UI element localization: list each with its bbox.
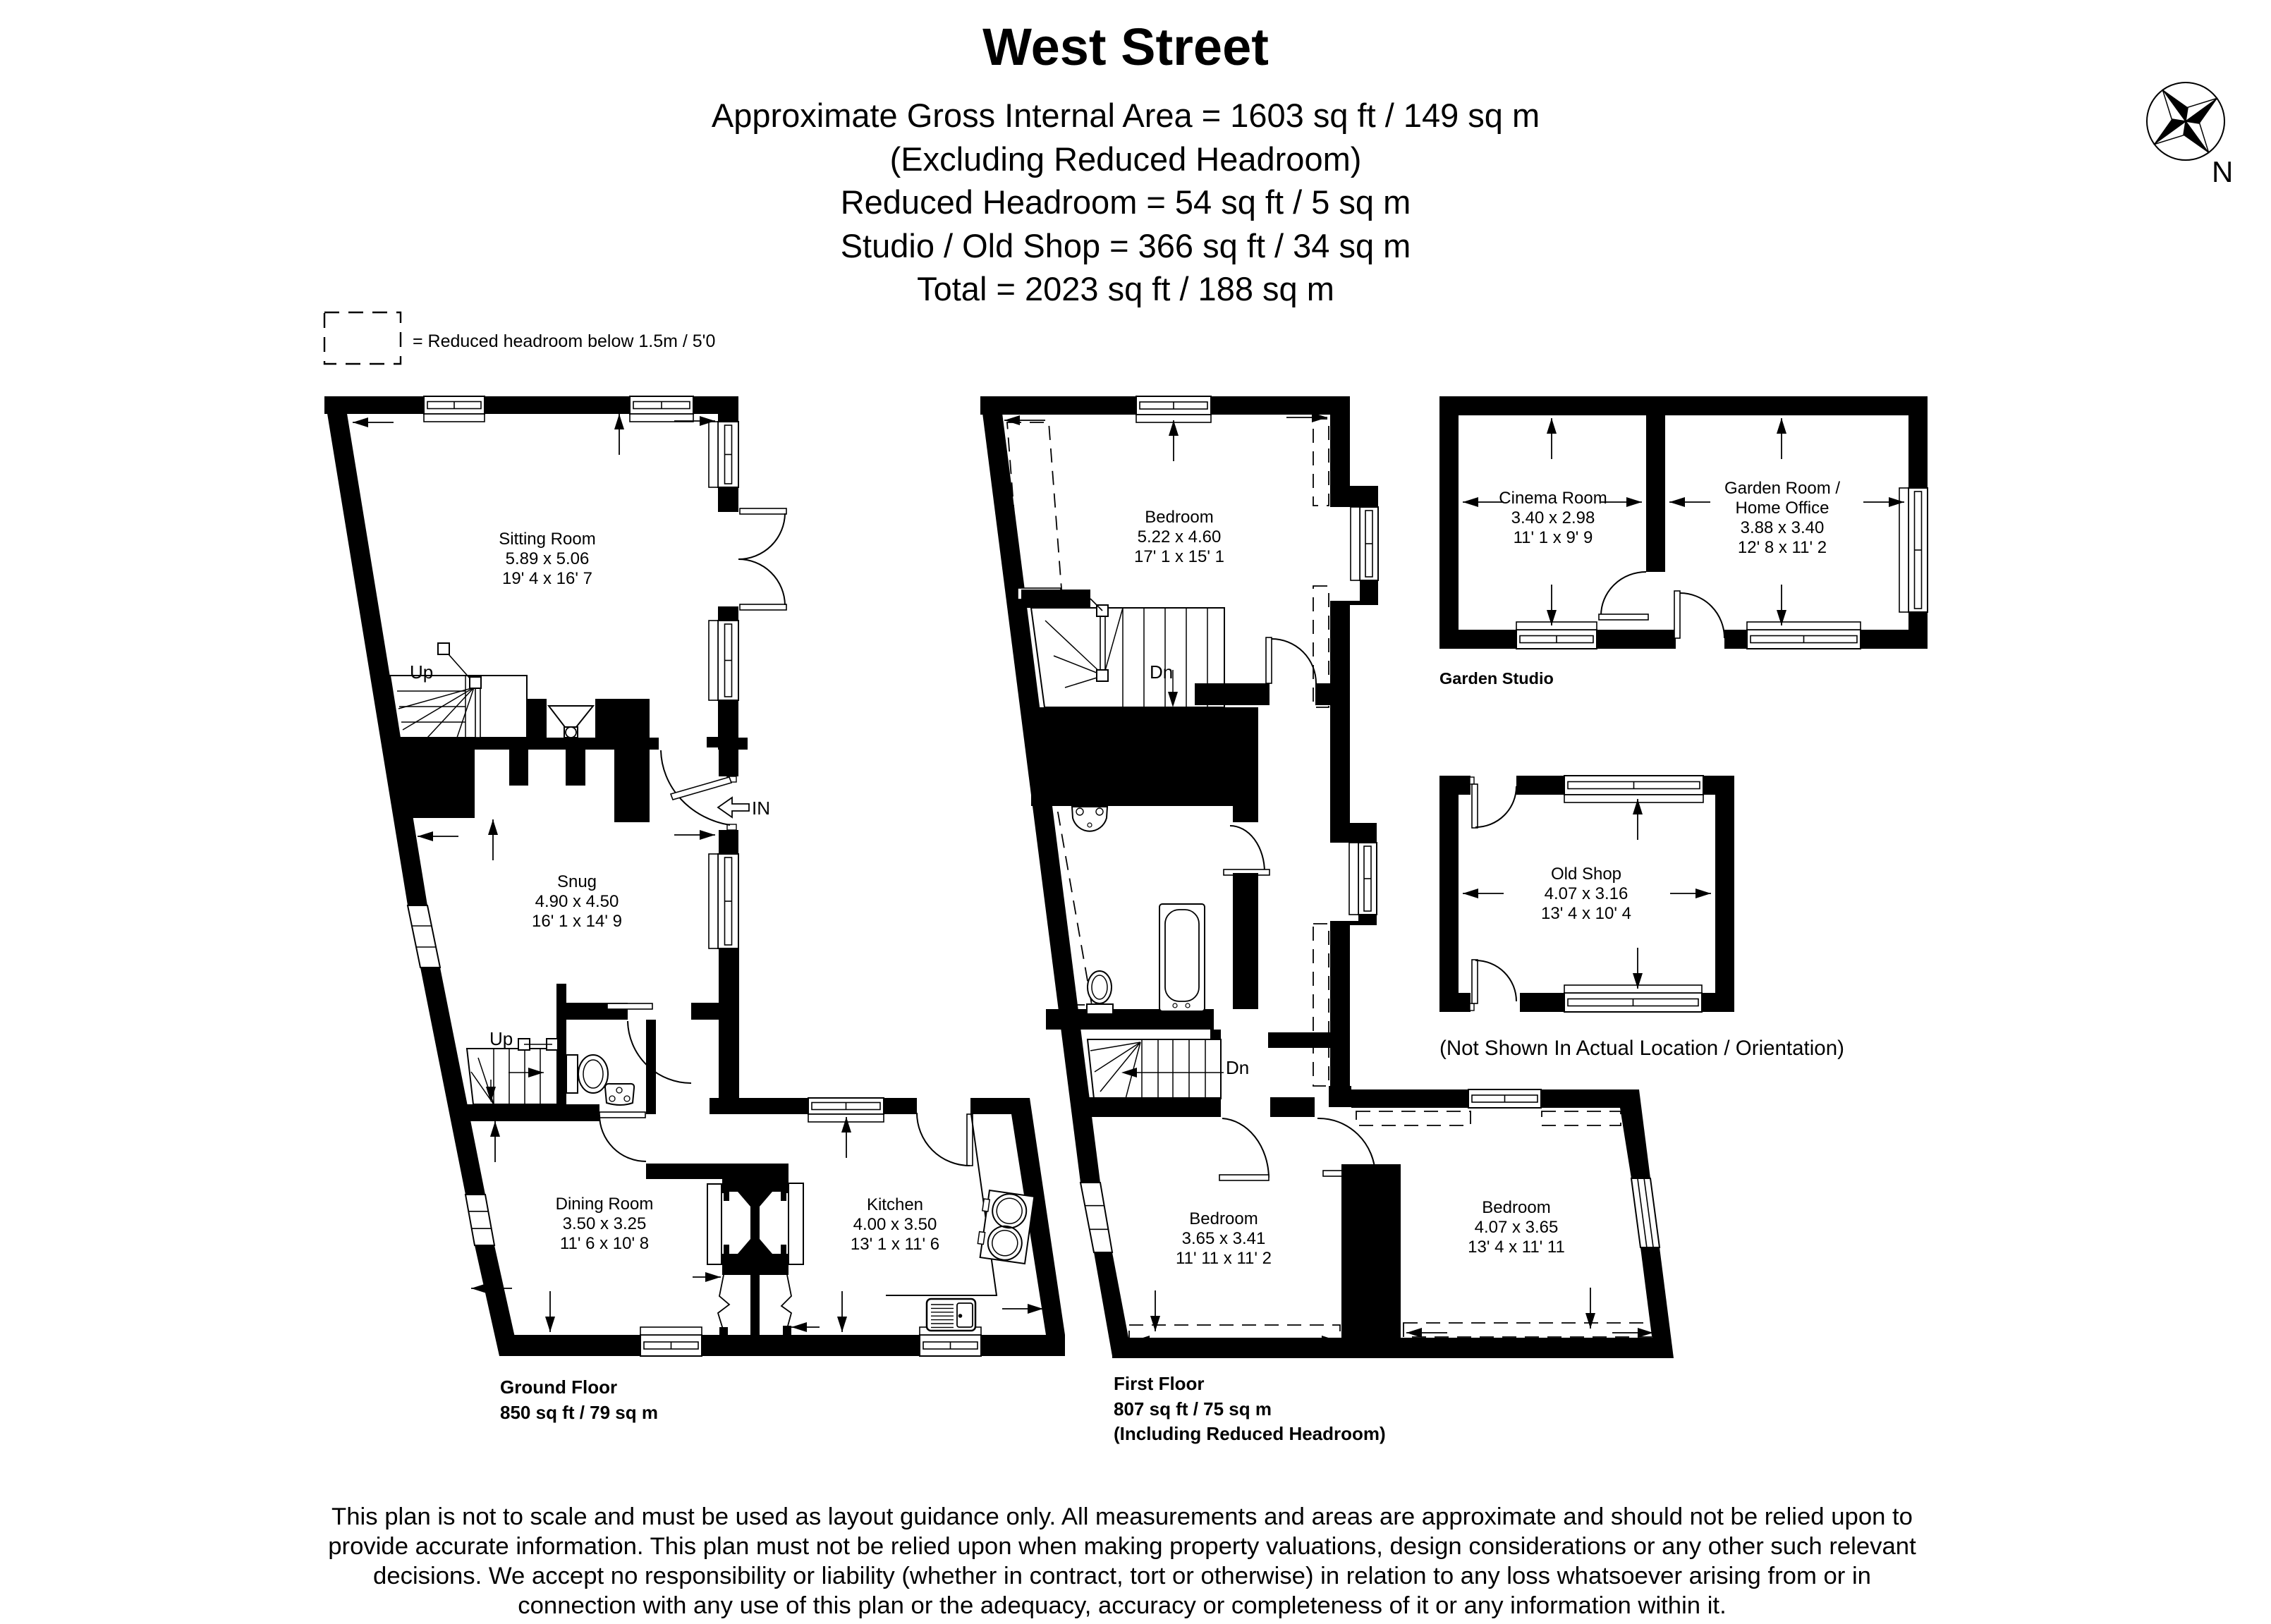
svg-text:4.07 x 3.16: 4.07 x 3.16: [1545, 884, 1628, 903]
svg-text:12' 8 x 11' 2: 12' 8 x 11' 2: [1738, 538, 1827, 557]
svg-text:Dn: Dn: [1150, 661, 1173, 683]
svg-text:19' 4 x 16' 7: 19' 4 x 16' 7: [502, 569, 592, 588]
svg-text:Cinema Room: Cinema Room: [1499, 489, 1607, 508]
svg-text:3.50 x 3.25: 3.50 x 3.25: [563, 1214, 647, 1233]
svg-text:Total = 2023 sq ft / 188 sq m: Total = 2023 sq ft / 188 sq m: [917, 270, 1334, 307]
svg-text:5.89 x 5.06: 5.89 x 5.06: [506, 549, 590, 568]
svg-text:Studio / Old Shop = 366 sq ft: Studio / Old Shop = 366 sq ft / 34 sq m: [841, 227, 1411, 264]
svg-text:Reduced Headroom = 54 sq ft /: Reduced Headroom = 54 sq ft / 5 sq m: [841, 183, 1411, 221]
svg-text:Ground Floor: Ground Floor: [500, 1376, 617, 1398]
svg-text:IN: IN: [752, 798, 770, 819]
svg-text:N: N: [2212, 155, 2233, 188]
svg-text:13' 4 x 11' 11: 13' 4 x 11' 11: [1468, 1238, 1565, 1257]
svg-text:4.00 x 3.50: 4.00 x 3.50: [853, 1215, 937, 1234]
svg-text:Garden Room /: Garden Room /: [1724, 479, 1840, 498]
svg-text:11' 6 x 10' 8: 11' 6 x 10' 8: [560, 1234, 649, 1253]
svg-text:First Floor: First Floor: [1114, 1373, 1205, 1394]
svg-text:16' 1 x 14' 9: 16' 1 x 14' 9: [532, 912, 622, 931]
svg-text:= Reduced headroom below 1.5m: = Reduced headroom below 1.5m / 5'0: [413, 331, 715, 351]
svg-text:17' 1 x 15' 1: 17' 1 x 15' 1: [1134, 547, 1224, 566]
svg-text:3.88 x 3.40: 3.88 x 3.40: [1741, 518, 1825, 537]
svg-text:4.90 x 4.50: 4.90 x 4.50: [535, 892, 619, 911]
svg-text:3.40 x 2.98: 3.40 x 2.98: [1511, 508, 1595, 527]
svg-text:Dining Room: Dining Room: [556, 1195, 654, 1214]
svg-text:850 sq ft / 79 sq m: 850 sq ft / 79 sq m: [500, 1402, 658, 1423]
svg-text:Home Office: Home Office: [1736, 499, 1829, 518]
svg-text:Garden Studio: Garden Studio: [1439, 669, 1554, 688]
svg-text:Sitting Room: Sitting Room: [499, 530, 595, 549]
svg-text:11' 1 x 9' 9: 11' 1 x 9' 9: [1514, 528, 1593, 547]
svg-text:13' 4 x 10' 4: 13' 4 x 10' 4: [1541, 904, 1631, 923]
svg-text:Up: Up: [410, 661, 433, 683]
svg-text:Old Shop: Old Shop: [1551, 865, 1621, 884]
svg-text:4.07 x 3.65: 4.07 x 3.65: [1475, 1218, 1559, 1237]
svg-text:(Not Shown In Actual Location: (Not Shown In Actual Location / Orientat…: [1439, 1037, 1844, 1060]
svg-text:Dn: Dn: [1226, 1057, 1249, 1078]
svg-text:Snug: Snug: [557, 872, 597, 891]
svg-text:provide accurate information.: provide accurate information. This plan …: [328, 1533, 1916, 1560]
svg-text:West Street: West Street: [982, 18, 1269, 76]
svg-text:Bedroom: Bedroom: [1189, 1209, 1258, 1228]
svg-text:5.22 x 4.60: 5.22 x 4.60: [1138, 527, 1222, 547]
svg-text:11' 11 x 11' 2: 11' 11 x 11' 2: [1176, 1249, 1272, 1268]
svg-text:Up: Up: [489, 1028, 513, 1049]
svg-text:13' 1 x 11' 6: 13' 1 x 11' 6: [851, 1235, 939, 1254]
svg-text:(Excluding Reduced Headroom): (Excluding Reduced Headroom): [890, 140, 1362, 178]
svg-text:Kitchen: Kitchen: [867, 1195, 923, 1214]
svg-text:Bedroom: Bedroom: [1145, 508, 1213, 527]
svg-text:This plan is not to scale and: This plan is not to scale and must be us…: [331, 1503, 1913, 1530]
svg-text:3.65 x 3.41: 3.65 x 3.41: [1182, 1229, 1266, 1248]
svg-text:Approximate Gross Internal Are: Approximate Gross Internal Area = 1603 s…: [712, 97, 1540, 134]
svg-text:connection with any use of thi: connection with any use of this plan or …: [518, 1592, 1726, 1619]
svg-text:decisions. We accept no respon: decisions. We accept no responsibility o…: [373, 1563, 1871, 1589]
svg-text:Bedroom: Bedroom: [1482, 1198, 1550, 1217]
svg-text:(Including Reduced Headroom): (Including Reduced Headroom): [1114, 1423, 1386, 1444]
svg-text:807 sq ft / 75 sq m: 807 sq ft / 75 sq m: [1114, 1398, 1272, 1420]
